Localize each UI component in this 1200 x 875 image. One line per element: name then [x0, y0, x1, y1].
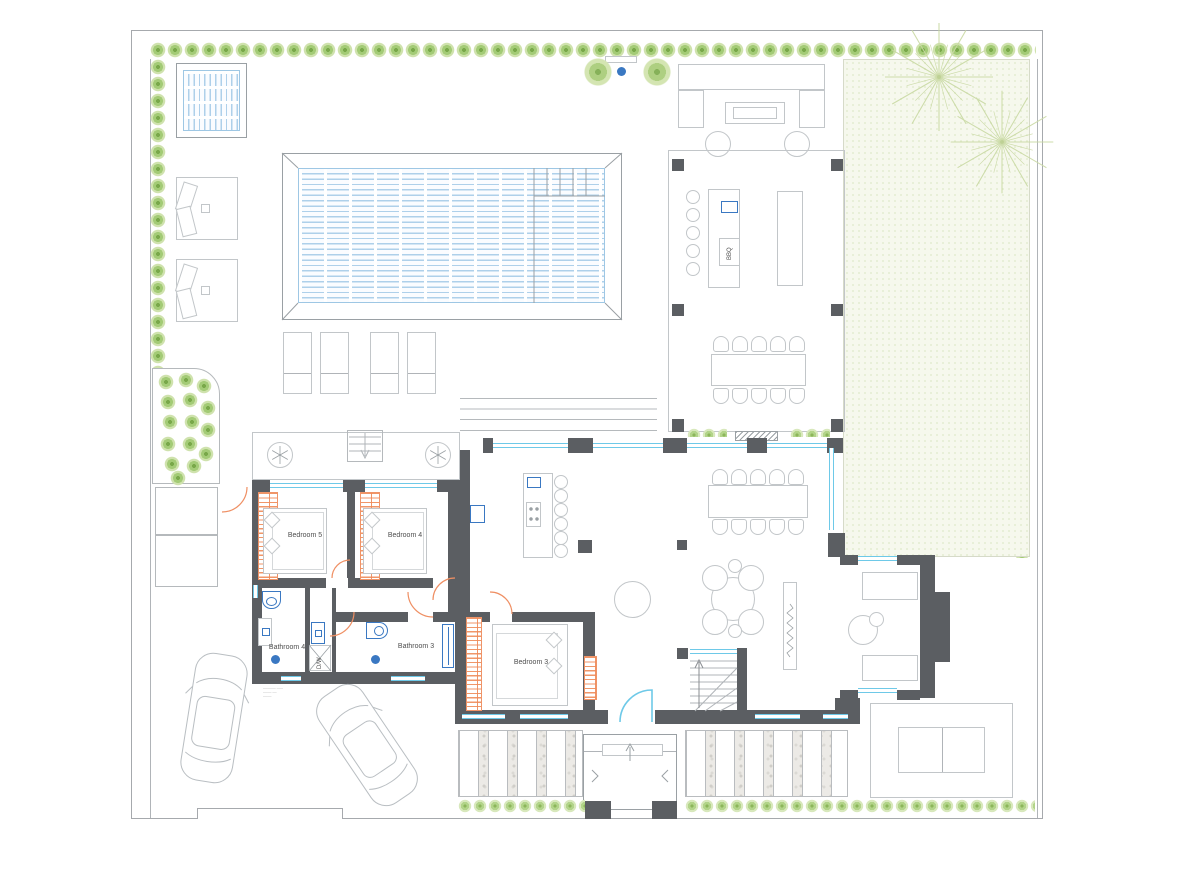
coffee-table [869, 612, 884, 627]
sun-lounger [176, 206, 198, 238]
hedge-left [150, 59, 167, 369]
round-planter [267, 442, 293, 468]
room-label-bedroom4: Bedroom 4 [375, 532, 435, 540]
bar-stool [554, 531, 568, 545]
floor-drain [371, 655, 380, 664]
bar-stool [554, 544, 568, 558]
porch-pier [585, 801, 611, 819]
lawn [843, 59, 1030, 557]
room-label-bedroom5: Bedroom 5 [275, 532, 335, 540]
porch-pier [652, 801, 677, 819]
oven [470, 505, 485, 523]
stool [728, 624, 742, 638]
bar-stool [686, 244, 700, 258]
tub-chair [702, 565, 728, 591]
side-table [201, 286, 210, 295]
slatted-deck [458, 730, 583, 797]
cooktop [526, 502, 541, 527]
sun-lounger [370, 332, 399, 394]
tub-chair [702, 609, 728, 635]
kitchen-sink [527, 477, 541, 488]
fireplace [935, 592, 950, 662]
hedge-top [150, 42, 1036, 59]
bar-stool [686, 208, 700, 222]
bar-stool [554, 503, 568, 517]
bbq-label: BBQ [727, 244, 733, 260]
room-label-bathroom4: Bathroom 4 [257, 644, 317, 652]
sofa [862, 655, 918, 681]
room-label-bathroom3: Bathroom 3 [386, 643, 446, 651]
shrub-row [458, 799, 585, 814]
outdoor-table [898, 727, 985, 773]
fence-line-right [1037, 59, 1038, 818]
bar-stool [554, 475, 568, 489]
bar-stool [554, 489, 568, 503]
bar-stool [554, 517, 568, 531]
pouf [614, 581, 651, 618]
tub-chair [738, 565, 764, 591]
outdoor-dining-table [711, 354, 806, 386]
sun-lounger [283, 332, 312, 394]
dining-table [708, 485, 808, 518]
coffee-table [725, 102, 785, 124]
fountain-dot [617, 67, 626, 76]
utility-pad [155, 487, 218, 535]
outdoor-sink [721, 201, 738, 213]
toilet [262, 591, 281, 609]
porch-step [602, 744, 663, 756]
floor-plan: BBQ [0, 0, 1200, 875]
spa-water [183, 70, 240, 131]
outdoor-sofa [799, 90, 825, 128]
terrace-stair [347, 430, 383, 462]
sun-lounger [176, 288, 198, 320]
stool [728, 559, 742, 573]
lounger-platform [176, 259, 238, 322]
sun-lounger [407, 332, 436, 394]
outdoor-sofa [678, 90, 704, 128]
round-planter [425, 442, 451, 468]
wardrobe [466, 617, 482, 711]
vanity-sink [258, 618, 272, 646]
plan-note: ────── ─── ──── ── ──── [263, 686, 303, 698]
planter-box [687, 428, 727, 437]
shrub [584, 58, 612, 86]
driveway-gate-recess [197, 808, 343, 819]
outdoor-sofa [678, 64, 825, 90]
planter-box [790, 428, 830, 437]
bar-stool [686, 190, 700, 204]
slatted-deck [685, 730, 848, 797]
closet [584, 656, 597, 700]
pool-water [298, 168, 605, 303]
side-table [201, 204, 210, 213]
room-label-bedroom3: Bedroom 3 [501, 659, 561, 667]
utility-pad [155, 535, 218, 587]
serving-counter [777, 191, 803, 286]
bar-stool [686, 226, 700, 240]
floor-drain [271, 655, 280, 664]
console-radiator [783, 582, 797, 670]
sofa [862, 572, 918, 600]
toilet [366, 622, 388, 639]
bar-stool [686, 262, 700, 276]
laundry-sink [311, 622, 325, 644]
room-label-laundry: D/W [317, 647, 323, 669]
shrub-row [685, 799, 1035, 814]
column [677, 540, 687, 550]
shrub [643, 58, 671, 86]
lounger-platform [176, 177, 238, 240]
sun-lounger [320, 332, 349, 394]
garden-steps [460, 398, 657, 431]
column [578, 540, 592, 553]
